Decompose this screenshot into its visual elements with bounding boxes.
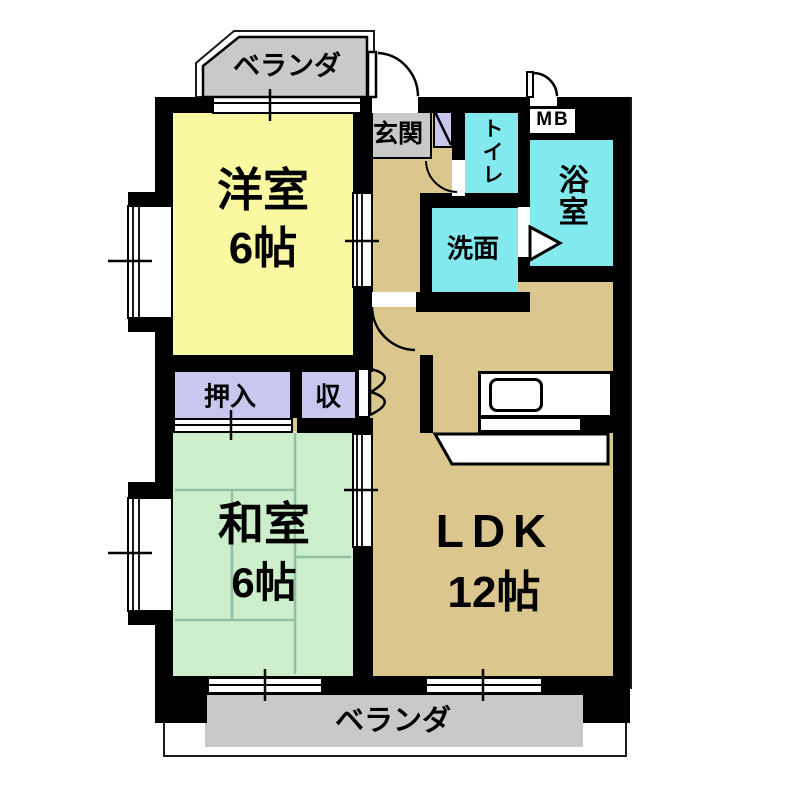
entrance-door-leaf [368,52,376,97]
kitchen-counter-front [435,434,608,464]
entrance-label: 玄関 [373,121,423,147]
ldk-label: LDK [436,507,555,555]
closet-oshiire-label: 押入 [204,383,256,410]
storage-bifold-door [370,369,385,415]
closet-storage-label: 収 [315,383,341,410]
meter-box-door-arc [534,73,557,96]
veranda-top-label: ベランダ [233,52,341,80]
toilet-label: トイレ [480,118,502,187]
washroom-label: 洗面 [447,235,499,262]
veranda-bottom-label: ベランダ [335,706,451,736]
floor-plan: 洋室 6帖 和室 6帖 LDK 12帖 ベランダ ベランダ 玄関 トイレ 洗面 … [0,0,787,787]
japanese-room-size: 6帖 [231,561,296,605]
japanese-room-label: 和室 [218,500,310,548]
toilet-door-arc [426,161,457,192]
tatami-lines [175,433,351,674]
western-room-size: 6帖 [229,226,297,272]
symbol-overlay [0,0,787,787]
entrance-door-arc [378,53,418,96]
ldk-size: 12帖 [448,570,541,616]
bathroom-label: 浴室 [554,164,586,228]
bathroom-door-triangle [530,227,560,260]
meter-box-label: MB [536,110,570,130]
hall-door-arc [372,307,415,350]
western-room-label: 洋室 [217,166,309,214]
shoe-cabinet-diagonal [435,112,451,145]
meter-box-door-leaf [527,72,533,97]
